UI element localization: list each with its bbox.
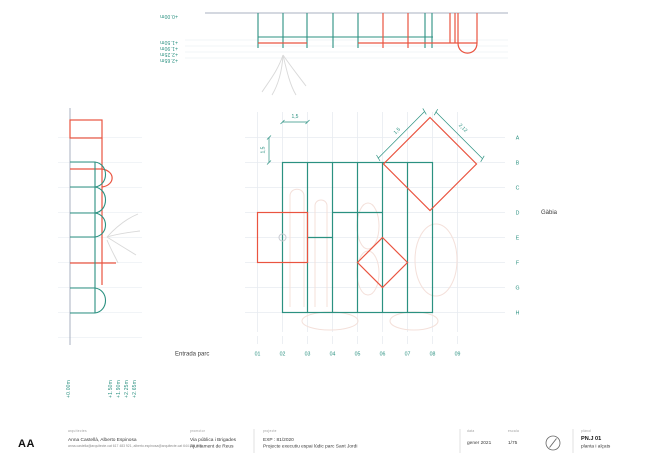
level-label: +2.65m (132, 380, 138, 398)
row-label: H (516, 311, 520, 317)
sheet-header: plànol (581, 429, 591, 433)
row-label: B (516, 161, 520, 167)
dimension-annotations (267, 108, 484, 164)
level-label: +1.90m (116, 380, 122, 398)
level-label: +2.65m (160, 57, 178, 63)
row-label: A (516, 136, 520, 142)
sheet-code: PN.J 01 (581, 436, 601, 442)
promoter-header: promotor (190, 429, 206, 433)
level-label: +2.25m (160, 51, 178, 57)
plan-reference-grid (245, 112, 505, 344)
scale-header: escala (508, 429, 519, 433)
level-label: +1.50m (108, 380, 114, 398)
level-label: +0.00m (66, 380, 72, 398)
title-block-scale: escala 1/75 (508, 429, 519, 446)
col-label: 07 (405, 352, 411, 358)
plan-view: 1,5 1,5 1,5 2,12 A B C D E F G H 01 02 0… (175, 108, 558, 357)
date-header: data (467, 429, 474, 433)
cage-label: Gàbia (541, 210, 558, 216)
row-labels: A B C D E F G H (515, 136, 519, 317)
architects-contact: anna.castella@arquitecte.cat 617 483 921… (68, 444, 202, 448)
row-label: G (515, 286, 519, 292)
architects-header: arquitectes (68, 429, 87, 433)
col-label: 05 (355, 352, 361, 358)
title-block-project: projecte EXP : 81/2020 Projecte executiu… (263, 429, 357, 450)
top-section-level-labels: +0.00m +1.50m +1.90m +2.25m +2.65m (160, 13, 178, 63)
dim-label-module-v: 1,5 (261, 146, 267, 153)
title-block-architects: arquitectes Anna Castellà, Alberto Espin… (68, 429, 202, 448)
col-label: 01 (255, 352, 261, 358)
level-label: +1.90m (160, 45, 178, 51)
top-section-level-lines (185, 13, 508, 58)
top-section-view: +0.00m +1.50m +1.90m +2.25m +2.65m (160, 13, 508, 95)
entrance-label: Entrada parc (175, 352, 209, 358)
promoter-line1: Via pública i Brigades (190, 437, 237, 443)
left-elevation-orange-structure (70, 120, 116, 285)
title-block: arquitectes Anna Castellà, Alberto Espin… (68, 429, 611, 453)
project-header: projecte (263, 429, 277, 433)
section-mark-label: AA (18, 438, 35, 450)
project-name: Projecte executiu espai lúdic parc Sant … (263, 444, 357, 450)
left-elevation-level-labels: +0.00m +1.50m +1.90m +2.25m +2.65m (66, 380, 138, 398)
tree-sketch-top (262, 55, 306, 95)
north-arrow-icon (546, 436, 560, 450)
col-label: 03 (305, 352, 311, 358)
col-label: 04 (330, 352, 336, 358)
title-block-promoter: promotor Via pública i Brigades Ajuntame… (190, 429, 237, 450)
left-elevation-view: +0.00m +1.50m +1.90m +2.25m +2.65m (58, 108, 142, 398)
date-value: gener 2021 (467, 440, 492, 446)
sheet-name: planta i alçats (581, 444, 611, 450)
scale-value: 1/75 (508, 440, 518, 446)
column-labels: 01 02 03 04 05 06 07 08 09 (255, 352, 461, 358)
project-exp: EXP : 81/2020 (263, 437, 294, 443)
top-section-structure (258, 13, 477, 53)
title-block-date: data gener 2021 (467, 429, 492, 446)
col-label: 02 (280, 352, 286, 358)
level-label: +0.00m (160, 13, 178, 19)
col-label: 09 (455, 352, 461, 358)
row-label: E (516, 236, 520, 242)
architects-name: Anna Castellà, Alberto Espinosa (68, 437, 137, 443)
dim-label-module-h: 1,5 (292, 114, 299, 120)
promoter-line2: Ajuntament de Reus (190, 444, 234, 450)
row-label: F (516, 261, 519, 267)
col-label: 08 (430, 352, 436, 358)
title-block-sheet: plànol PN.J 01 planta i alçats (581, 429, 611, 450)
row-label: D (516, 211, 520, 217)
dim-label-diamond-side: 1,5 (393, 127, 402, 136)
tree-sketch-left (107, 214, 140, 263)
level-label: +2.25m (124, 380, 130, 398)
dim-label-diamond-diag: 2,12 (457, 123, 468, 134)
level-label: +1.50m (160, 39, 178, 45)
col-label: 06 (380, 352, 386, 358)
row-label: C (516, 186, 520, 192)
architectural-sheet: +0.00m +1.50m +1.90m +2.25m +2.65m (0, 0, 650, 460)
